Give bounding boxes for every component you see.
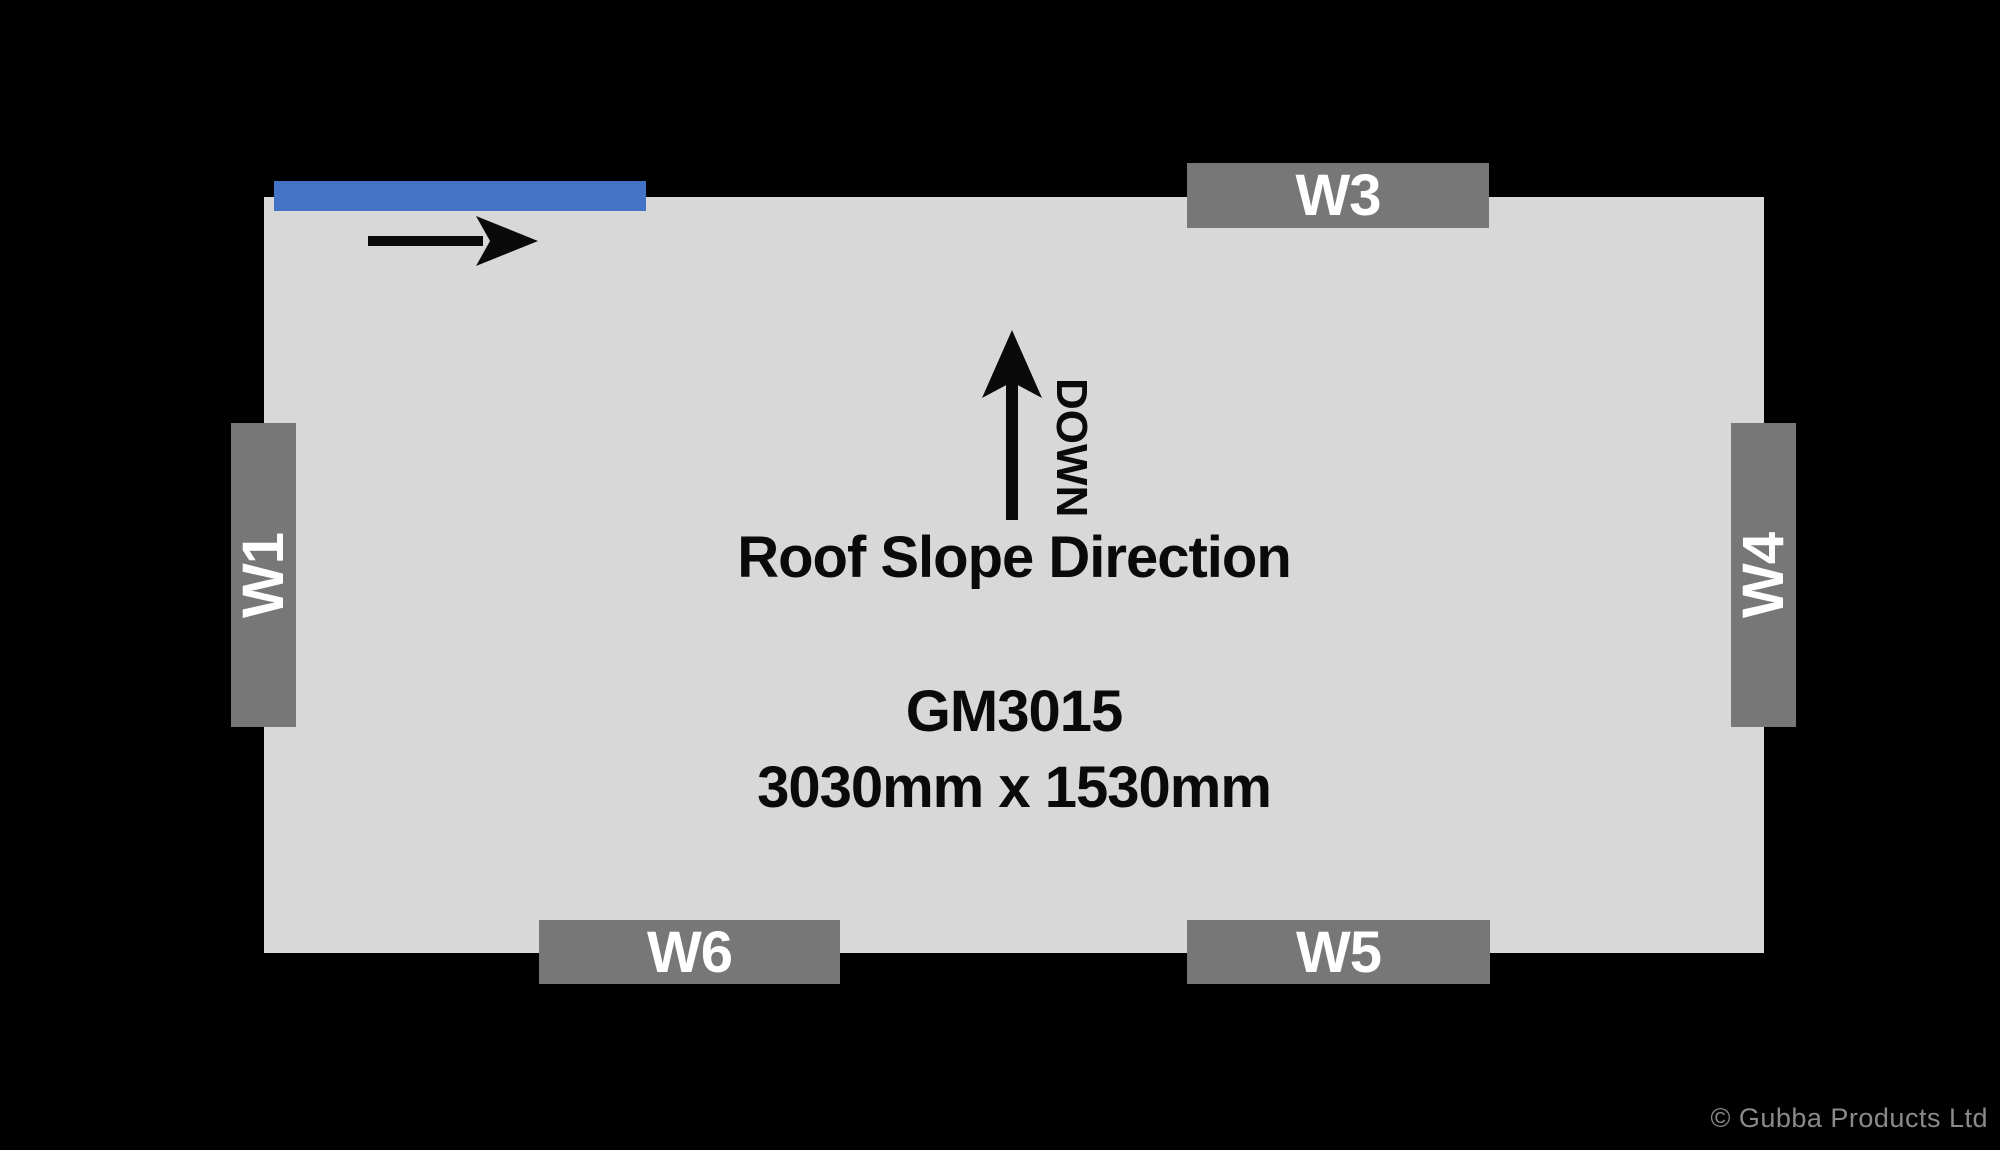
wall-label-text: W3 — [1296, 162, 1381, 229]
model-info-block: GM3015 3030mm x 1530mm — [264, 674, 1764, 826]
wall-label-w3: W3 — [1187, 163, 1489, 228]
wall-label-text: W5 — [1296, 919, 1381, 986]
arrow-up-icon — [980, 328, 1044, 522]
roof-slope-down-label: DOWN — [1046, 378, 1096, 517]
model-name: GM3015 — [264, 674, 1764, 750]
wall-label-w6: W6 — [539, 920, 840, 984]
roof-slope-caption: Roof Slope Direction — [264, 526, 1764, 590]
door-panel-bar — [274, 181, 646, 211]
wall-label-text: W6 — [647, 919, 732, 986]
roof-plan-diagram: W3 W1 W4 W6 W5 DOWN Roof Slope Direction… — [0, 0, 2000, 1150]
model-dimensions: 3030mm x 1530mm — [264, 750, 1764, 826]
copyright-text: © Gubba Products Ltd — [1710, 1103, 1988, 1134]
wall-label-w5: W5 — [1187, 920, 1490, 984]
arrow-right-icon — [366, 214, 540, 268]
